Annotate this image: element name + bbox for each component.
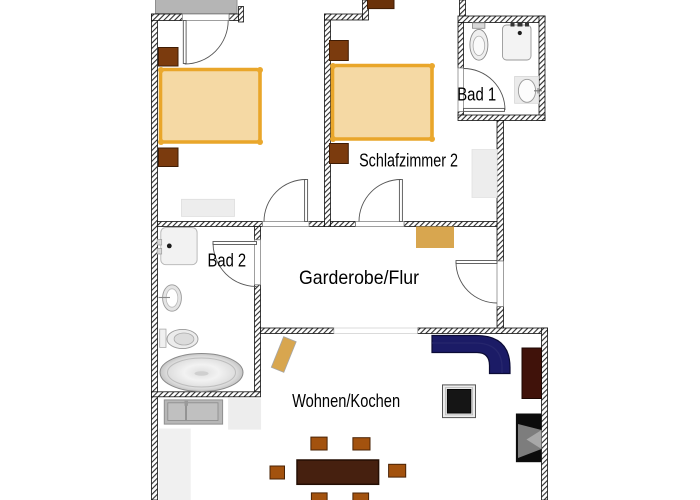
svg-text:Wohnen/Kochen: Wohnen/Kochen (292, 390, 400, 411)
svg-text:Garderobe/Flur: Garderobe/Flur (299, 267, 419, 289)
svg-text:Schlafzimmer 2: Schlafzimmer 2 (359, 149, 458, 170)
svg-text:Bad 2: Bad 2 (208, 251, 247, 271)
svg-text:Bad 1: Bad 1 (457, 84, 496, 104)
